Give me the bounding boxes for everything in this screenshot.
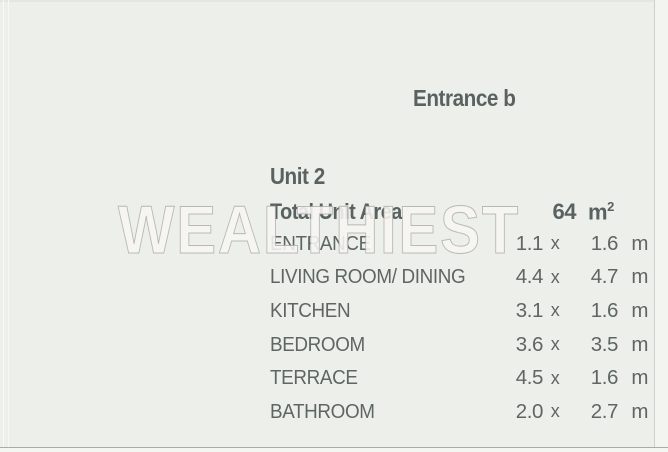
- room-name: TERRACE: [270, 366, 486, 390]
- room-width: 2.0: [505, 400, 543, 424]
- bottom-edge-line: [0, 447, 668, 448]
- room-name: LIVING ROOM/ DINING: [270, 265, 486, 289]
- dimension-unit: m: [618, 400, 648, 424]
- left-scan-line-2: [8, 0, 9, 452]
- room-name: BATHROOM: [270, 400, 486, 424]
- dimension-separator: x: [543, 300, 567, 321]
- table-row: BEDROOM 3.6 x 3.5 m: [270, 328, 648, 362]
- room-depth: 1.6: [567, 366, 618, 390]
- table-row: KITCHEN 3.1 x 1.6 m: [270, 294, 648, 328]
- room-depth: 1.6: [567, 299, 618, 323]
- total-area-unit-exponent: 2: [607, 199, 614, 214]
- table-row: ENTRANCE 1.1 x 1.6 m: [270, 227, 648, 261]
- right-edge-line: [654, 0, 655, 448]
- dimension-separator: x: [543, 401, 567, 422]
- table-row: LIVING ROOM/ DINING 4.4 x 4.7 m: [270, 261, 648, 295]
- dimension-separator: x: [543, 233, 567, 254]
- room-width: 1.1: [505, 232, 543, 256]
- room-depth: 3.5: [567, 333, 618, 357]
- total-area-unit: m2: [576, 199, 648, 225]
- room-width: 3.6: [505, 333, 543, 357]
- room-name: BEDROOM: [270, 333, 486, 357]
- dimension-separator: x: [543, 267, 567, 288]
- room-depth: 2.7: [567, 400, 618, 424]
- dimension-unit: m: [618, 299, 648, 323]
- room-depth: 1.6: [567, 232, 618, 256]
- total-unit-area-row: Total Unit Area 64 m2: [270, 199, 648, 225]
- room-dimension-table: ENTRANCE 1.1 x 1.6 m LIVING ROOM/ DINING…: [270, 227, 648, 429]
- left-scan-line: [3, 0, 4, 452]
- room-width: 4.4: [505, 265, 543, 289]
- room-name: ENTRANCE: [270, 232, 486, 256]
- dimension-unit: m: [618, 232, 648, 256]
- total-area-unit-base: m: [588, 199, 607, 224]
- entrance-heading: Entrance b: [413, 85, 515, 112]
- dimension-separator: x: [543, 368, 567, 389]
- room-depth: 4.7: [567, 265, 618, 289]
- dimension-unit: m: [618, 333, 648, 357]
- floorplan-legend-page: Entrance b Unit 2 Total Unit Area 64 m2 …: [0, 0, 668, 452]
- bottom-margin-strip: [0, 448, 668, 452]
- total-area-value: 64: [548, 199, 576, 225]
- dimension-unit: m: [618, 265, 648, 289]
- top-edge-line: [0, 0, 668, 2]
- dimension-unit: m: [618, 366, 648, 390]
- right-margin-strip: [655, 0, 668, 448]
- room-width: 4.5: [505, 366, 543, 390]
- dimension-separator: x: [543, 334, 567, 355]
- total-area-label: Total Unit Area: [270, 199, 520, 225]
- table-row: BATHROOM 2.0 x 2.7 m: [270, 395, 648, 429]
- room-width: 3.1: [505, 299, 543, 323]
- room-name: KITCHEN: [270, 299, 486, 323]
- unit-title: Unit 2: [270, 163, 325, 190]
- table-row: TERRACE 4.5 x 1.6 m: [270, 361, 648, 395]
